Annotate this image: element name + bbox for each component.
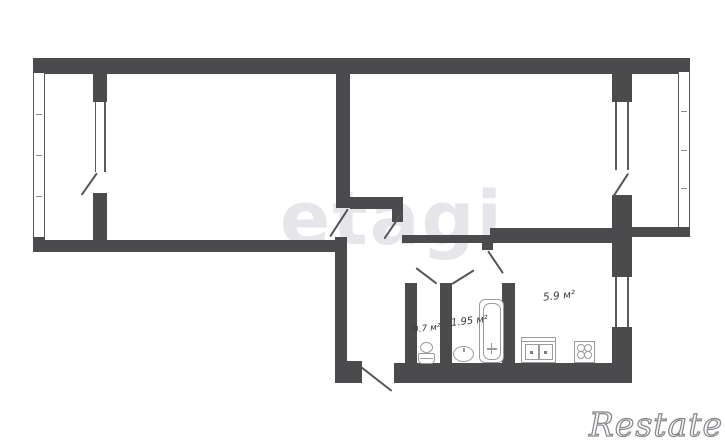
wall-balcony-right-lower — [612, 195, 632, 228]
toilet-base-icon — [418, 353, 435, 364]
wall-right-room-bottom-thin — [402, 235, 490, 243]
wall-hall-left — [335, 237, 347, 364]
wall-bottom-main — [394, 363, 632, 383]
balcony-left-glazing — [33, 73, 45, 237]
door-kitchen-leaf — [487, 250, 504, 274]
wall-entry-corner — [335, 361, 362, 383]
wall-balcony-left-lower — [93, 193, 107, 241]
window-left-room — [93, 102, 107, 172]
door-balcony-right-leaf — [612, 173, 629, 198]
door-left-room-leaf — [329, 208, 349, 237]
wall-kitchen-right-upper — [612, 240, 632, 277]
window-right-room — [612, 102, 632, 170]
wash-basin-icon — [453, 346, 474, 362]
wall-bottom-left-room — [33, 240, 347, 252]
door-entry-leaf — [360, 366, 392, 392]
bathtub-icon — [479, 299, 504, 363]
kitchen-area-label: 5.9 м² — [542, 288, 575, 303]
balcony-right-glazing — [678, 72, 690, 227]
window-kitchen — [612, 277, 632, 327]
wall-right-room-bottom-thick — [490, 228, 632, 243]
wall-wc-left — [405, 283, 417, 365]
door-wc-leaf — [415, 267, 437, 284]
stove-icon — [574, 341, 595, 363]
wc-area-label: 0.7 м² — [413, 323, 441, 336]
wall-kitchen-door-stub — [482, 235, 493, 250]
wall-kitchen-right-lower — [612, 327, 632, 383]
wall-top — [33, 58, 690, 74]
wall-balcony-left-upper — [93, 74, 107, 103]
wall-balcony-right-upper — [612, 74, 632, 103]
wall-between-rooms — [336, 74, 350, 208]
door-bathroom-leaf — [451, 269, 474, 284]
floor-plan: 0.7 м² 1.95 м² 5.9 м² — [0, 0, 725, 444]
toilet-icon — [420, 342, 433, 353]
floor-plan-canvas: etagi Restate — [0, 0, 725, 444]
wall-door-zone — [350, 197, 403, 209]
kitchen-sink-icon — [521, 337, 556, 363]
wall-balcony-right-bottom-band — [632, 227, 690, 237]
